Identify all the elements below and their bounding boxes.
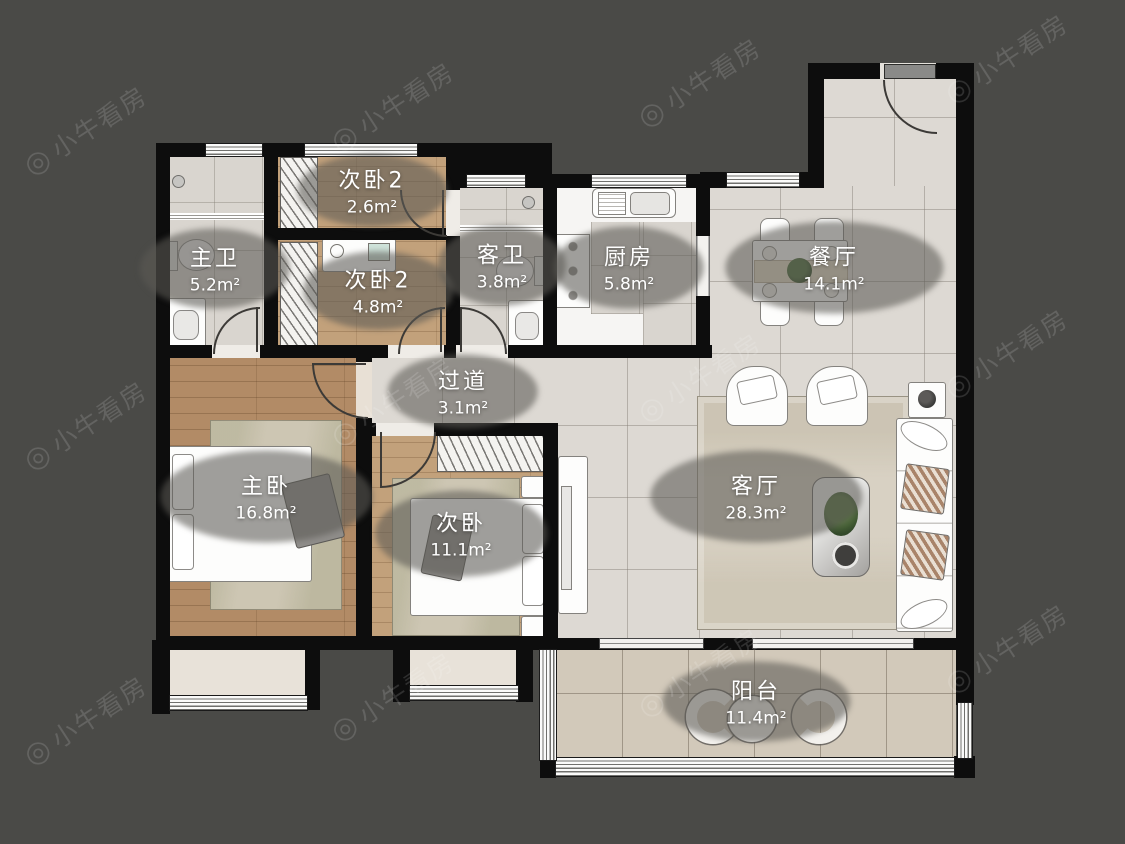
wall (356, 418, 372, 640)
wall (540, 758, 556, 778)
room-area: 5.2m² (190, 276, 240, 296)
room-name: 餐厅 (809, 240, 859, 272)
window (467, 175, 525, 187)
wall (152, 640, 170, 714)
entry-door-leaf (884, 64, 936, 79)
wall (696, 186, 710, 236)
balcony-window-left (540, 650, 556, 760)
door-leaf (440, 307, 442, 352)
watermark: ◎小牛看房 (17, 372, 154, 479)
balcony-window-right (958, 703, 972, 758)
watermark-logo-icon: ◎ (17, 434, 58, 477)
room-area: 28.3m² (725, 504, 786, 524)
sink-basin-2 (515, 312, 539, 340)
room-name: 次卧2 (339, 163, 406, 195)
sofa-cushion (900, 463, 950, 515)
floor-bay-window-2 (410, 650, 518, 688)
sliding-door (600, 639, 703, 648)
shower-head-icon (172, 175, 185, 188)
room-label-closet1: 次卧2 2.6m² (339, 163, 406, 218)
room-name: 次卧 (436, 506, 486, 538)
kitchen-sink-basin (630, 192, 670, 215)
shower-divider (166, 213, 266, 220)
wall (156, 143, 170, 643)
watermark-logo-icon: ◎ (17, 139, 58, 182)
room-area: 3.1m² (438, 399, 488, 419)
sink-basin (173, 310, 199, 340)
watermark-text: 小牛看房 (965, 595, 1075, 684)
room-area: 11.1m² (430, 541, 491, 561)
floorplan-canvas: 主卫 5.2m² 次卧2 2.6m² 次卧2 4.8m² 客卫 3.8m² 厨房… (0, 0, 1125, 844)
door-leaf (312, 363, 366, 365)
door-leaf (380, 432, 382, 486)
watermark-text: 小牛看房 (965, 300, 1075, 389)
room-label-balcony: 阳台 11.4m² (725, 674, 786, 729)
room-label-master-bedroom: 主卧 16.8m² (235, 469, 296, 524)
room-area: 5.8m² (604, 275, 654, 295)
room-name: 阳台 (731, 674, 781, 706)
window (727, 173, 799, 187)
wall (956, 63, 974, 705)
room-area: 4.8m² (353, 298, 403, 318)
tv (561, 486, 572, 590)
watermark-text: 小牛看房 (658, 29, 768, 118)
room-label-bedroom2: 次卧 11.1m² (430, 506, 491, 561)
balcony-window (556, 758, 954, 776)
room-name: 主卧 (241, 469, 291, 501)
watermark-text: 小牛看房 (351, 53, 461, 142)
shower-head-icon-2 (522, 196, 535, 209)
wall (156, 636, 548, 650)
wall (446, 143, 552, 176)
wall (305, 638, 320, 710)
room-name: 次卧2 (345, 263, 412, 295)
coffee-table-tray (832, 542, 859, 569)
door-leaf (460, 307, 462, 352)
wall (954, 756, 975, 778)
bay-window (170, 696, 307, 710)
watermark-logo-icon: ◎ (631, 91, 672, 134)
room-label-dining: 餐厅 14.1m² (803, 240, 864, 295)
bay-window (410, 686, 518, 700)
room-label-living: 客厅 28.3m² (725, 469, 786, 524)
window (592, 175, 686, 187)
door-opening (446, 190, 460, 236)
bed-pillow (522, 556, 544, 606)
sofa-cushion (900, 529, 950, 581)
wall (516, 638, 533, 702)
room-label-guest-bath: 客卫 3.8m² (477, 238, 527, 293)
sliding-door (753, 639, 913, 648)
room-area: 16.8m² (235, 504, 296, 524)
room-label-kitchen: 厨房 5.8m² (604, 240, 654, 295)
room-name: 过道 (438, 364, 488, 396)
watermark-logo-icon: ◎ (324, 705, 365, 748)
room-name: 主卫 (190, 241, 240, 273)
kitchen-drainboard (598, 192, 626, 215)
room-area: 14.1m² (803, 275, 864, 295)
watermark-text: 小牛看房 (44, 372, 154, 461)
window (206, 144, 262, 156)
room-area: 3.8m² (477, 273, 527, 293)
room-name: 厨房 (604, 240, 654, 272)
side-table-flower (918, 390, 936, 408)
watermark: ◎小牛看房 (631, 29, 768, 136)
watermark: ◎小牛看房 (17, 77, 154, 184)
wardrobe-bedroom2 (437, 432, 547, 472)
room-label-closet2: 次卧2 4.8m² (345, 263, 412, 318)
watermark: ◎小牛看房 (17, 667, 154, 774)
watermark-text: 小牛看房 (44, 667, 154, 756)
wall (393, 638, 410, 702)
room-area: 11.4m² (725, 709, 786, 729)
room-name: 客卫 (477, 238, 527, 270)
watermark-logo-icon: ◎ (17, 729, 58, 772)
door-leaf (256, 307, 258, 352)
wall (808, 63, 824, 188)
watermark-text: 小牛看房 (965, 5, 1075, 94)
room-label-hallway: 过道 3.1m² (438, 364, 488, 419)
room-name: 客厅 (731, 469, 781, 501)
watermark-text: 小牛看房 (44, 77, 154, 166)
floor-bay-window-1 (170, 650, 307, 698)
room-label-master-bath: 主卫 5.2m² (190, 241, 240, 296)
room-area: 2.6m² (347, 198, 397, 218)
